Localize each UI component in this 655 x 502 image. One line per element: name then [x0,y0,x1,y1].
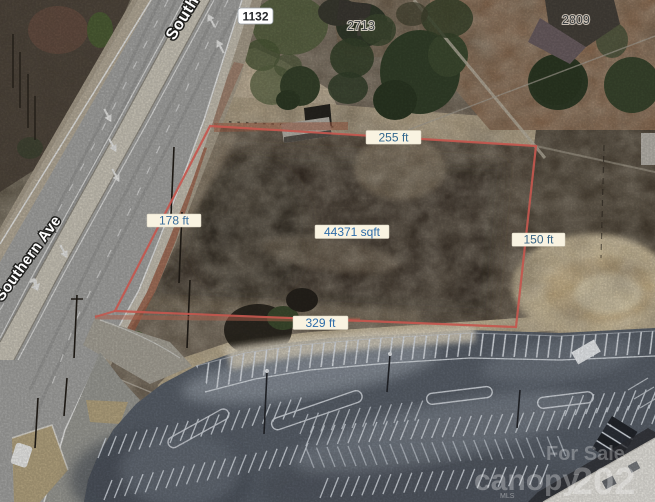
svg-text:202: 202 [572,461,635,502]
svg-text:178 ft: 178 ft [159,214,190,228]
svg-text:canopy: canopy [474,464,579,497]
svg-text:1132: 1132 [242,10,268,24]
svg-text:255 ft: 255 ft [378,130,409,144]
svg-text:44371 sqft: 44371 sqft [324,225,381,239]
svg-text:329 ft: 329 ft [305,316,336,330]
svg-text:150 ft: 150 ft [523,233,554,247]
svg-text:MLS: MLS [500,493,515,500]
svg-text:2809: 2809 [562,13,590,27]
svg-text:2713: 2713 [347,19,375,33]
